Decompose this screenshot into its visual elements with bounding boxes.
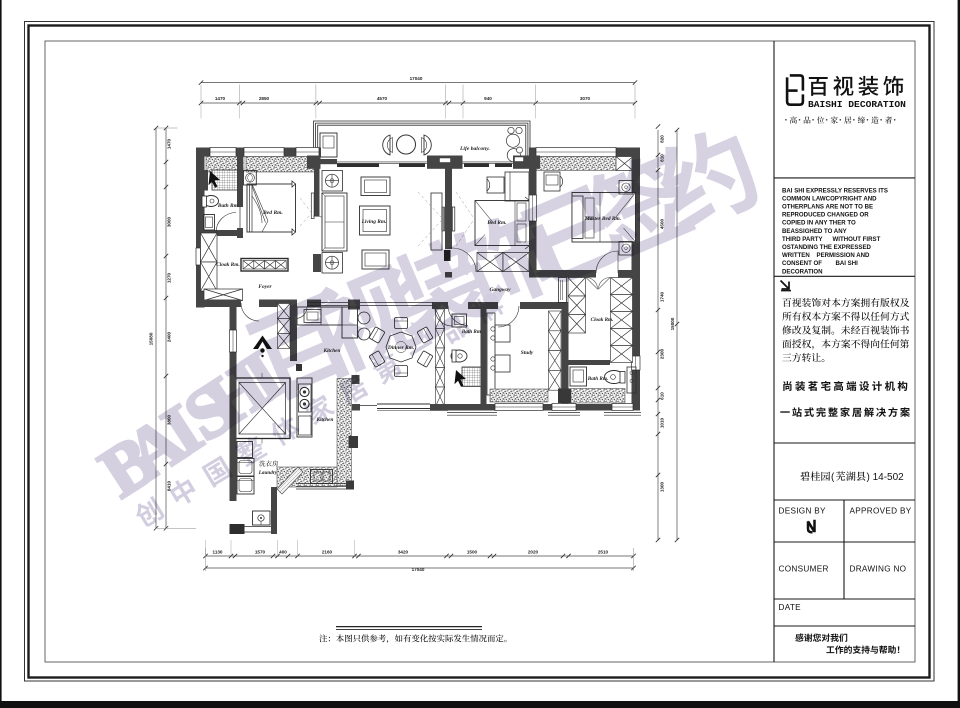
svg-text:1470: 1470 [215, 96, 226, 101]
svg-text:BEASSIGHED TO ANY: BEASSIGHED TO ANY [782, 228, 847, 235]
svg-text:1470: 1470 [167, 138, 172, 149]
svg-text:Laundry: Laundry [258, 470, 278, 476]
svg-text:Bed Rm.: Bed Rm. [262, 210, 283, 216]
svg-text:1300: 1300 [660, 481, 665, 492]
svg-text:Study: Study [521, 350, 534, 356]
svg-text:CONSUMER: CONSUMER [779, 565, 829, 574]
svg-text:Living Rm.: Living Rm. [361, 219, 387, 225]
svg-text:2400: 2400 [167, 331, 172, 342]
svg-text:15080: 15080 [149, 332, 154, 345]
svg-text:2160: 2160 [322, 550, 333, 555]
svg-text:1270: 1270 [167, 272, 172, 283]
svg-text:Foyer: Foyer [258, 284, 272, 290]
svg-text:1570: 1570 [255, 550, 266, 555]
svg-text:1740: 1740 [660, 291, 665, 302]
svg-text:BAI SHI EXPRESSLY RESERVES ITS: BAI SHI EXPRESSLY RESERVES ITS [782, 187, 888, 194]
svg-text:Cloak Rm.: Cloak Rm. [216, 262, 240, 268]
svg-text:15000: 15000 [670, 317, 675, 330]
svg-text:Bath Rm.: Bath Rm. [217, 203, 239, 209]
svg-text:COPIED IN ANY THER TO: COPIED IN ANY THER TO [782, 220, 856, 227]
svg-text:Bath Rm.: Bath Rm. [587, 376, 608, 382]
svg-text:THIRD PARTY WITHOUT FIRST: THIRD PARTY WITHOUT FIRST [782, 236, 881, 243]
svg-text:OTHERPLANS ARE NOT TO BE: OTHERPLANS ARE NOT TO BE [782, 204, 873, 211]
svg-text:1010: 1010 [660, 417, 665, 428]
svg-text:610: 610 [660, 392, 665, 400]
svg-text:DRAWING NO: DRAWING NO [850, 565, 907, 574]
svg-text:CONSENT OF BAI SHI: CONSENT OF BAI SHI [782, 260, 858, 267]
svg-text:BAISHI DECORATION: BAISHI DECORATION [808, 99, 906, 110]
svg-text:940: 940 [484, 96, 492, 101]
svg-text:WRITTEN PERMISSION AND: WRITTEN PERMISSION AND [782, 252, 870, 259]
svg-text:OSTANDING THE EXPRESSED: OSTANDING THE EXPRESSED [782, 244, 872, 251]
svg-text:DATE: DATE [779, 603, 802, 612]
svg-text:4500: 4500 [660, 218, 665, 229]
svg-text:4570: 4570 [377, 96, 388, 101]
svg-text:REPRODUCED CHANGED OR: REPRODUCED CHANGED OR [782, 212, 869, 219]
svg-text:17040: 17040 [410, 76, 423, 81]
svg-text:APPROVED BY: APPROVED BY [850, 507, 912, 516]
svg-text:2020: 2020 [528, 550, 539, 555]
svg-text:1130: 1130 [213, 550, 223, 555]
svg-text:2300: 2300 [660, 348, 665, 359]
svg-text:Life balcony.: Life balcony. [459, 146, 490, 152]
svg-text:2850: 2850 [259, 96, 270, 101]
svg-text:1500: 1500 [467, 550, 478, 555]
svg-text:3070: 3070 [580, 96, 591, 101]
svg-text:DECORATION: DECORATION [782, 268, 823, 275]
svg-text:) 14-502: ) 14-502 [867, 472, 905, 483]
svg-text:2510: 2510 [598, 550, 609, 555]
svg-text:COMMON LAWCOPYRIGHT AND: COMMON LAWCOPYRIGHT AND [782, 195, 877, 202]
svg-text:3420: 3420 [398, 550, 409, 555]
svg-text:820: 820 [660, 135, 665, 143]
svg-text:Cloak Rm.: Cloak Rm. [591, 317, 614, 323]
svg-text:17040: 17040 [412, 567, 425, 572]
svg-text:DESIGN BY: DESIGN BY [779, 507, 827, 516]
svg-text:3000: 3000 [167, 216, 172, 227]
svg-text:400: 400 [279, 550, 287, 555]
